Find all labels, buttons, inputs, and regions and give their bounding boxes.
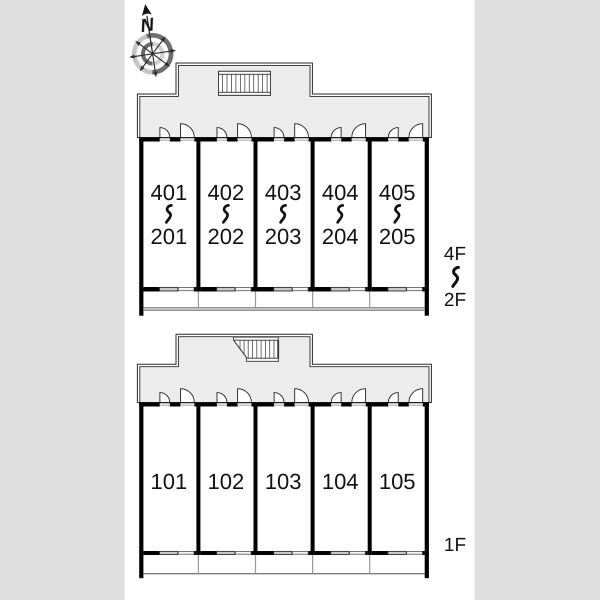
svg-text:404: 404 xyxy=(322,180,359,205)
svg-text:4F: 4F xyxy=(444,244,466,265)
svg-text:2F: 2F xyxy=(444,290,466,311)
svg-text:403: 403 xyxy=(265,180,302,205)
svg-text:102: 102 xyxy=(208,469,245,494)
svg-text:203: 203 xyxy=(265,224,302,249)
svg-text:104: 104 xyxy=(322,469,359,494)
svg-text:105: 105 xyxy=(379,469,416,494)
svg-text:401: 401 xyxy=(151,180,188,205)
svg-text:101: 101 xyxy=(151,469,188,494)
svg-text:202: 202 xyxy=(208,224,245,249)
svg-text:405: 405 xyxy=(379,180,416,205)
svg-text:402: 402 xyxy=(208,180,245,205)
svg-text:103: 103 xyxy=(265,469,302,494)
svg-text:205: 205 xyxy=(379,224,416,249)
svg-text:1F: 1F xyxy=(444,535,466,556)
svg-text:201: 201 xyxy=(151,224,188,249)
svg-text:204: 204 xyxy=(322,224,359,249)
